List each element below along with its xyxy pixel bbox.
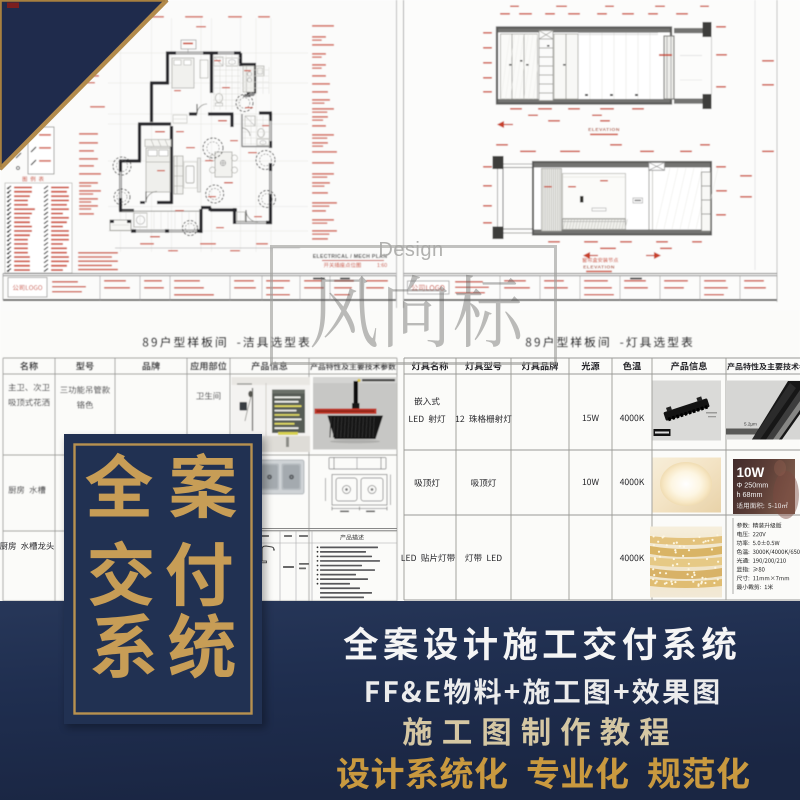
svg-text:ELECTRICAL / MECH PLAN: ELECTRICAL / MECH PLAN (313, 254, 388, 260)
svg-text:10W: 10W (737, 465, 765, 480)
svg-text:ELEVATION: ELEVATION (583, 265, 615, 271)
svg-text:Design: Design (378, 239, 443, 261)
svg-text:Φ 250mm: Φ 250mm (737, 481, 769, 490)
svg-text:h 68mm: h 68mm (737, 490, 763, 499)
svg-text:ELEVATION: ELEVATION (588, 127, 620, 133)
svg-text:1:60: 1:60 (377, 263, 387, 269)
svg-text:5.2µm: 5.2µm (744, 422, 757, 427)
